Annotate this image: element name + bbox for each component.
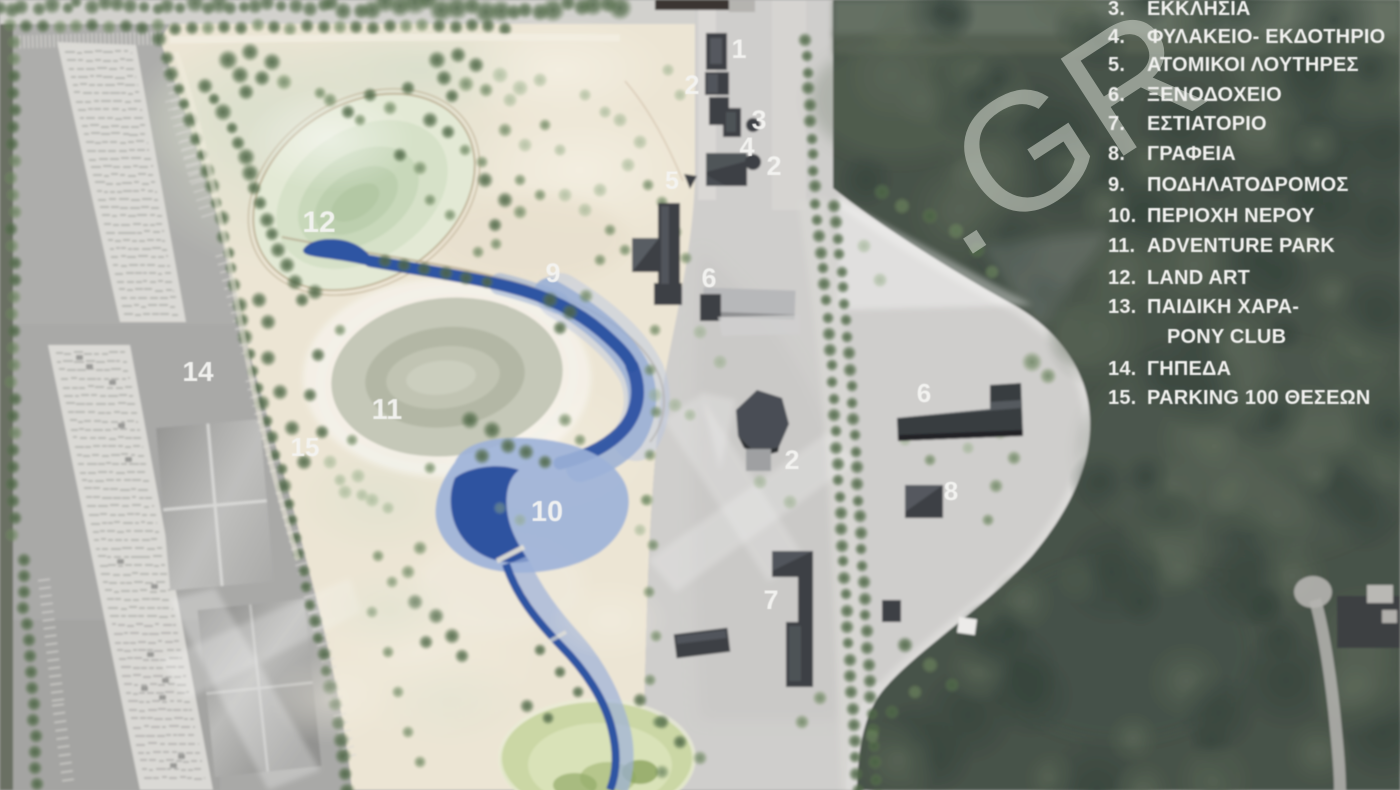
svg-text:4: 4 [739,132,754,162]
svg-text:2: 2 [684,70,699,100]
svg-text:ΠΟΔΗΛΑΤΟΔΡΟΜΟΣ: ΠΟΔΗΛΑΤΟΔΡΟΜΟΣ [1147,174,1349,196]
svg-text:12: 12 [302,206,335,239]
svg-text:14: 14 [182,356,214,387]
svg-text:15.: 15. [1108,387,1136,409]
svg-text:ΕΚΚΛΗΣΙΑ: ΕΚΚΛΗΣΙΑ [1147,0,1251,20]
svg-text:11.: 11. [1108,235,1135,257]
svg-text:5: 5 [665,167,679,195]
svg-text:2: 2 [784,445,799,475]
svg-text:LAND ART: LAND ART [1147,267,1250,289]
svg-text:14.: 14. [1108,358,1136,380]
svg-text:ΓΗΠΕΔΑ: ΓΗΠΕΔΑ [1147,358,1231,380]
svg-text:ΦΥΛΑΚΕΙΟ- ΕΚΔΟΤΗΡΙΟ: ΦΥΛΑΚΕΙΟ- ΕΚΔΟΤΗΡΙΟ [1147,26,1385,48]
svg-text:8: 8 [944,476,958,506]
svg-text:13.: 13. [1108,296,1136,318]
svg-text:ΓΡΑΦΕΙΑ: ΓΡΑΦΕΙΑ [1147,143,1236,165]
svg-text:9.: 9. [1108,174,1125,196]
svg-text:6.: 6. [1108,84,1125,106]
svg-text:PARKING 100 ΘΕΣΕΩΝ: PARKING 100 ΘΕΣΕΩΝ [1147,387,1371,409]
svg-text:ΕΣΤΙΑΤΟΡΙΟ: ΕΣΤΙΑΤΟΡΙΟ [1147,113,1267,135]
svg-text:ΑΤΟΜΙΚΟΙ ΛΟΥΤΗΡΕΣ: ΑΤΟΜΙΚΟΙ ΛΟΥΤΗΡΕΣ [1147,54,1359,76]
svg-text:ΠΕΡΙΟΧΗ ΝΕΡΟΥ: ΠΕΡΙΟΧΗ ΝΕΡΟΥ [1147,205,1315,227]
svg-text:8.: 8. [1108,143,1125,165]
svg-text:6: 6 [701,263,716,293]
svg-text:4.: 4. [1108,26,1125,48]
svg-text:7.: 7. [1108,113,1125,135]
svg-text:3: 3 [751,105,766,135]
svg-text:1: 1 [731,34,746,64]
svg-text:ΞΕΝΟΔΟΧΕΙΟ: ΞΕΝΟΔΟΧΕΙΟ [1147,84,1282,106]
svg-text:ADVENTURE PARK: ADVENTURE PARK [1147,235,1335,257]
svg-text:9: 9 [545,258,560,288]
svg-text:15: 15 [291,432,320,462]
svg-text:10.: 10. [1108,205,1136,227]
svg-text:11: 11 [372,394,403,426]
svg-text:ΠΑΙΔΙΚΗ ΧΑΡΑ-: ΠΑΙΔΙΚΗ ΧΑΡΑ- [1147,296,1299,318]
svg-text:3.: 3. [1108,0,1125,20]
svg-text:7: 7 [763,585,778,615]
svg-text:6: 6 [917,378,931,408]
svg-text:12.: 12. [1108,267,1136,289]
svg-text:5.: 5. [1108,54,1125,76]
svg-text:PONY CLUB: PONY CLUB [1167,326,1286,348]
svg-text:2: 2 [766,151,781,181]
svg-text:10: 10 [531,496,563,528]
